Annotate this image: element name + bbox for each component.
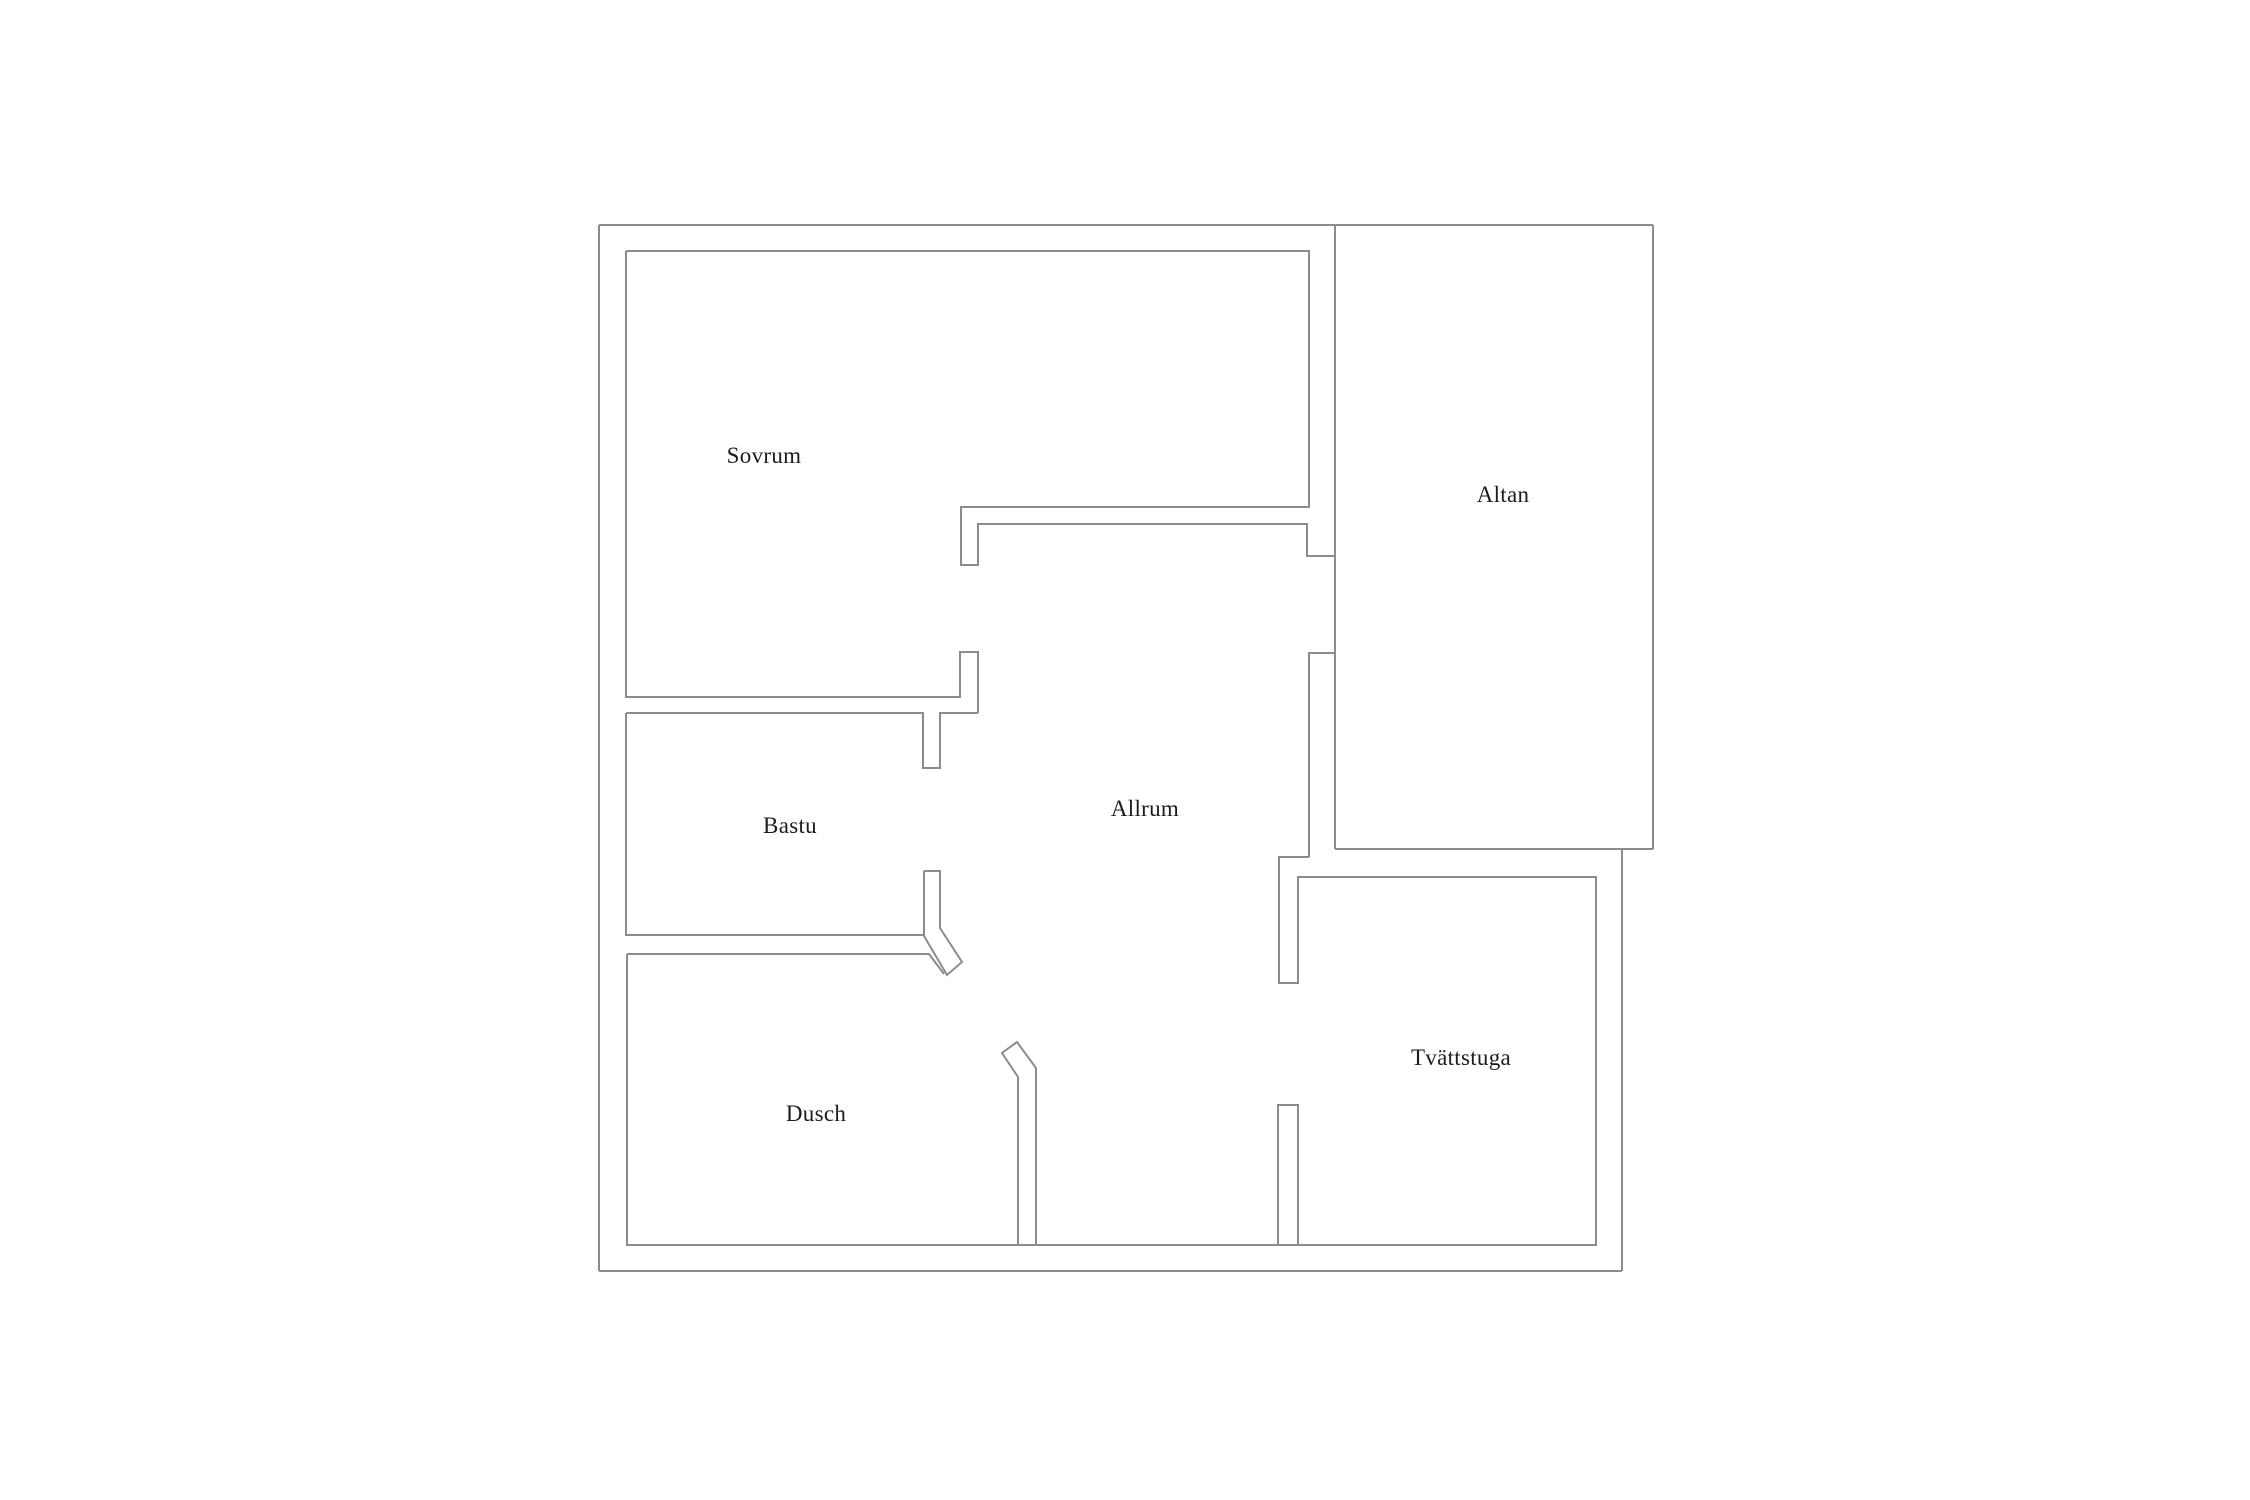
wall-dusch-door-leaf (1002, 1042, 1036, 1077)
floor-plan: Sovrum Altan Bastu Allrum Dusch Tvättstu… (0, 0, 2250, 1500)
room-label-dusch: Dusch (786, 1101, 846, 1127)
wall-dusch-top (627, 954, 944, 974)
room-label-bastu: Bastu (763, 813, 817, 839)
wall-sovrum-left-bottom (626, 251, 978, 713)
wall-allrum-east-wall (1309, 653, 1336, 857)
room-label-allrum: Allrum (1111, 796, 1179, 822)
wall-bastu-top (626, 713, 978, 768)
wall-sovrum-outline (626, 251, 1335, 565)
room-label-tvattstuga: Tvättstuga (1411, 1045, 1511, 1071)
wall-entry-wall-right (1278, 1105, 1298, 1245)
wall-dusch-outline (627, 954, 1018, 1245)
floor-plan-walls-layer (0, 0, 2250, 1500)
room-label-sovrum: Sovrum (727, 443, 802, 469)
room-label-altan: Altan (1477, 482, 1530, 508)
wall-bastu-door-leaf (924, 871, 962, 975)
